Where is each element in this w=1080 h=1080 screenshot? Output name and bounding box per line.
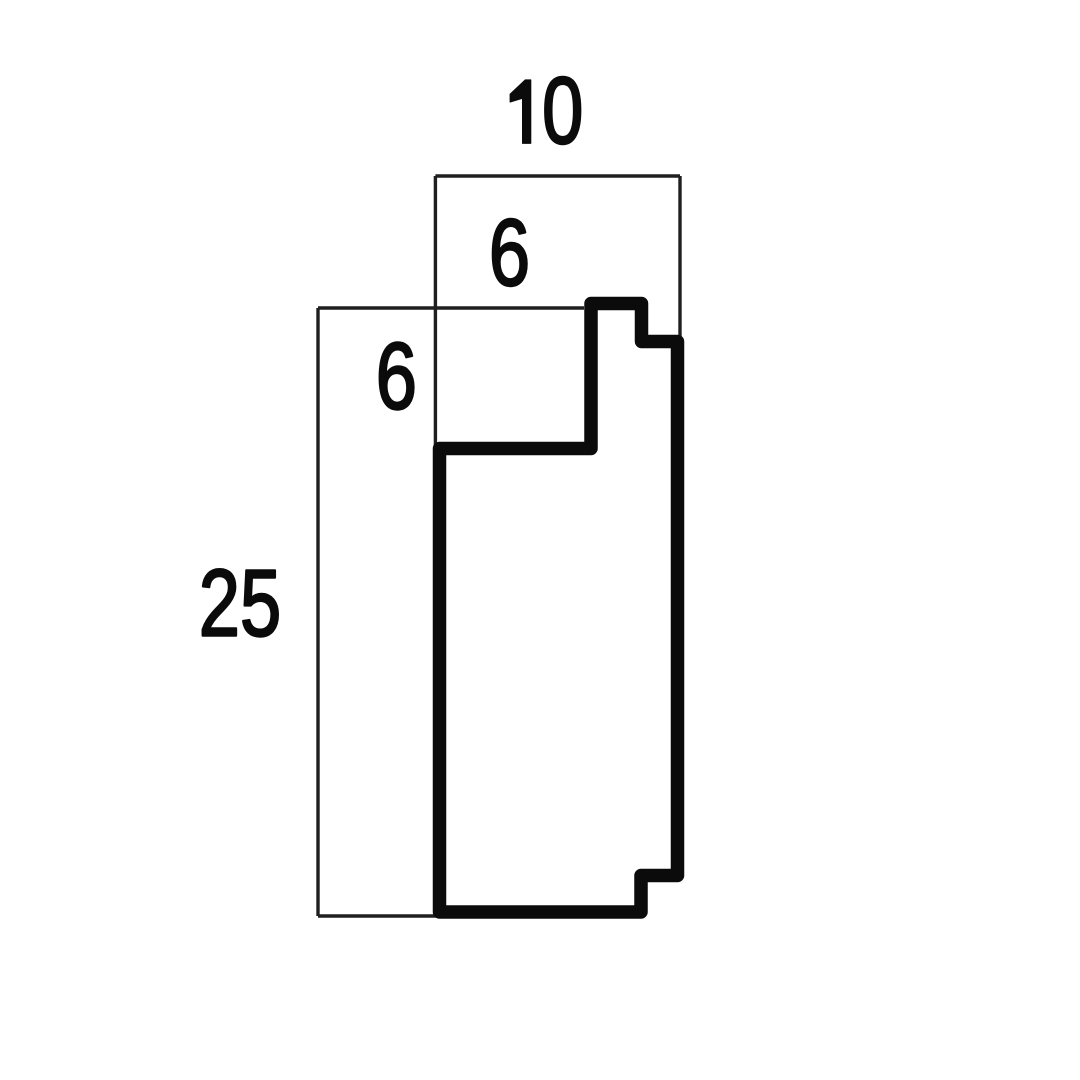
svg-text:25: 25 [199,551,281,657]
svg-text:6: 6 [376,324,417,430]
svg-text:0: 0 [542,58,583,164]
svg-text:6: 6 [489,200,530,306]
